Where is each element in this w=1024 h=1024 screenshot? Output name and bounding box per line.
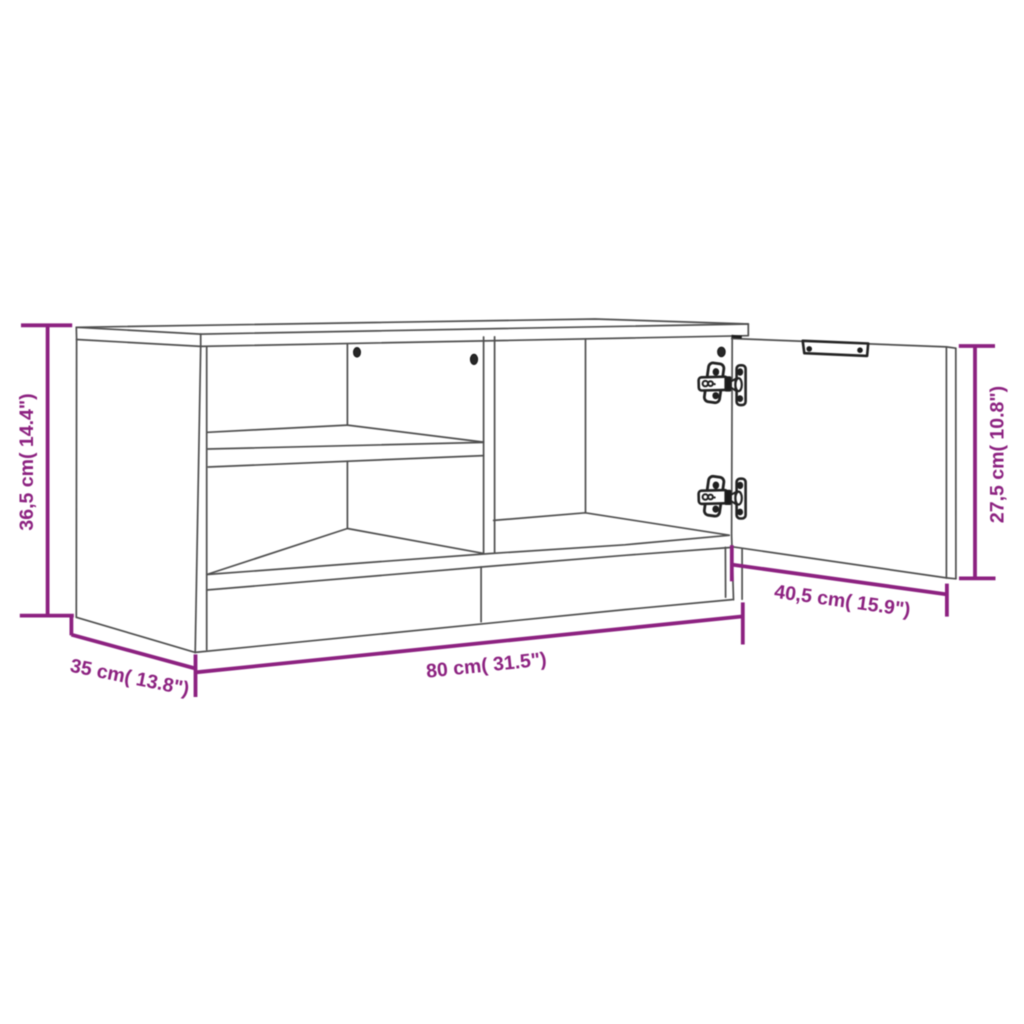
svg-text:36,5 cm( 14.4"): 36,5 cm( 14.4") <box>16 393 38 530</box>
svg-text:27,5 cm( 10.8"): 27,5 cm( 10.8") <box>987 386 1009 523</box>
